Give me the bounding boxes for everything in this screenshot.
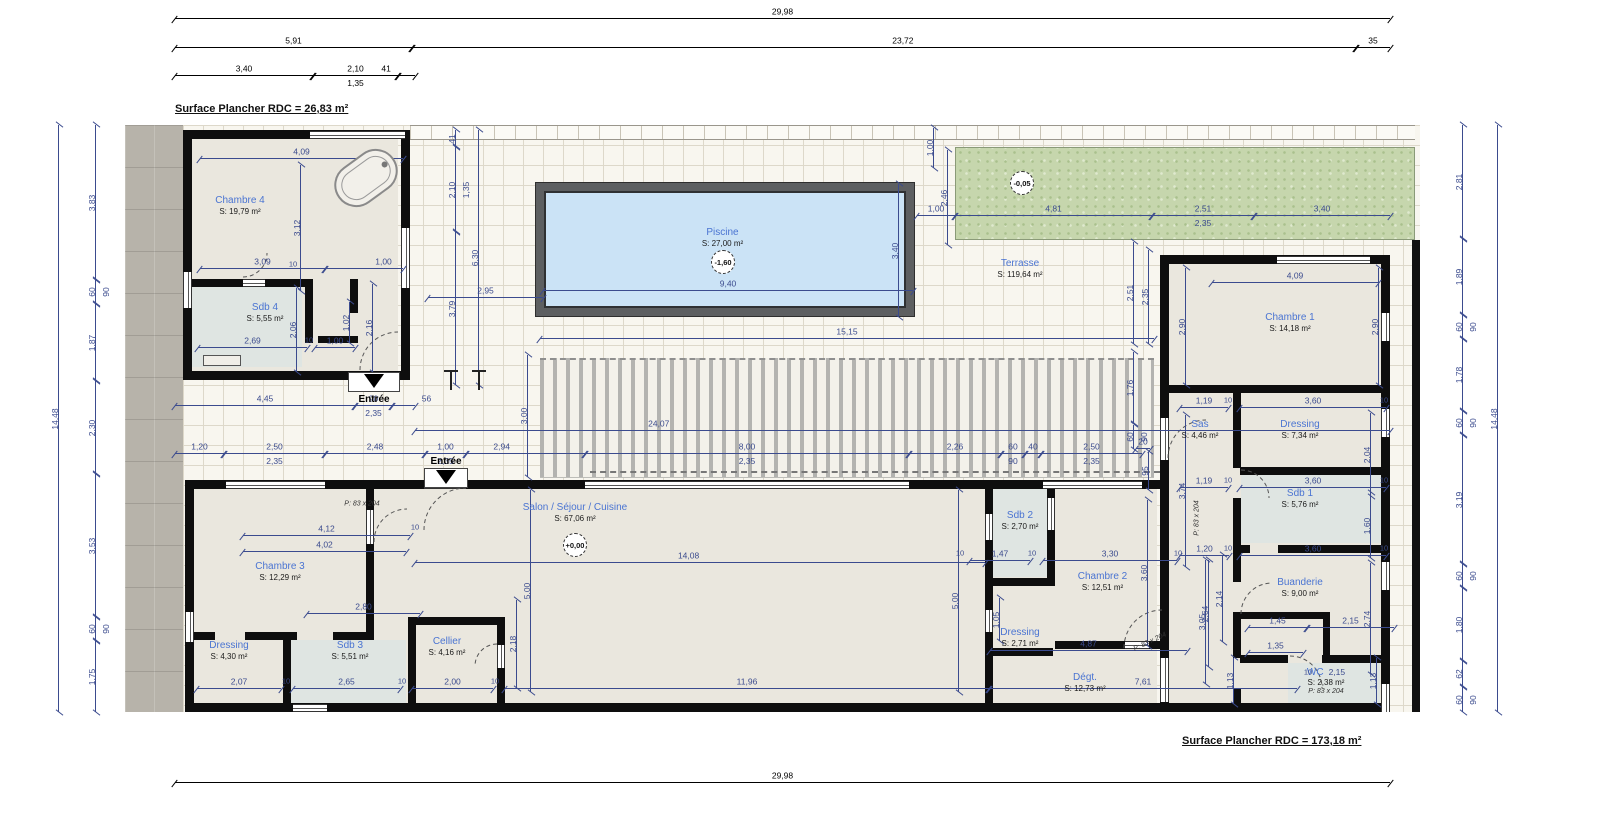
- dimension-1,20: 1,20: [175, 453, 224, 454]
- dim-label: 1,35: [1267, 642, 1284, 651]
- dimension-3,09: 3,09: [200, 268, 325, 269]
- dim-sublabel: 90: [1469, 322, 1478, 331]
- dim-label: 1,00: [437, 443, 454, 452]
- room-sdb3: Sdb 3S: 5,51 m²: [295, 636, 405, 666]
- dimension-1,80: 1,80: [1462, 588, 1463, 661]
- room-area: S: 4,16 m²: [429, 648, 466, 658]
- dim-label: 4,45: [257, 395, 274, 404]
- dimension-95: 95: [1148, 452, 1149, 490]
- room-name-row: Chambre 2: [1078, 571, 1127, 583]
- dimension-2,16: 2,16: [372, 284, 373, 372]
- dim-sublabel: 90: [102, 624, 111, 633]
- dim-label: 2,90: [1178, 318, 1187, 335]
- dimension-2,26: 2,26: [909, 453, 1001, 454]
- room-name-row: Dressing: [1280, 419, 1319, 431]
- dim-label: 2,14: [1215, 590, 1224, 607]
- dimension-2,74: 2,74: [1370, 563, 1371, 674]
- room-name-row: Terrasse: [1001, 258, 1039, 270]
- surface-label-bottom: Surface Plancher RDC = 173,18 m²: [1182, 735, 1361, 747]
- dim-label: 2,04: [1363, 446, 1372, 463]
- room-name-row: Buanderie: [1277, 577, 1323, 589]
- dimension-1,47: 1,47: [970, 560, 1030, 561]
- dim-label: 9,40: [720, 280, 737, 289]
- dim-label: 14,08: [678, 552, 699, 561]
- room-chambre2: Chambre 2S: 12,51 m²: [1050, 566, 1155, 598]
- dimension-3,60: 3,60: [1240, 407, 1386, 408]
- dimension-15,15: 15,15: [540, 338, 1154, 339]
- room-name-row: Piscine: [706, 227, 738, 239]
- dim-label-small: 10: [305, 336, 313, 345]
- dimension-2,46: 2,46: [947, 150, 948, 245]
- dimension-1,19: 1,19: [1180, 407, 1228, 408]
- dim-label: 4,09: [293, 148, 310, 157]
- level-marker: +0,00: [563, 533, 587, 557]
- room-area: S: 2,70 m²: [1002, 522, 1039, 532]
- dim-label: 41: [381, 65, 390, 74]
- dim-label-small: 10: [1380, 544, 1388, 553]
- dim-label: 1,60: [1363, 517, 1372, 534]
- dim-label: 4,12: [318, 525, 335, 534]
- room-name-row: Chambre 3: [255, 561, 304, 573]
- dimension-4,09: 4,09: [1212, 282, 1378, 283]
- dimension-7,61: 7,61: [989, 688, 1297, 689]
- dimension-2,14: 2,14: [1222, 555, 1223, 642]
- dimension-4,12: 4,12: [243, 535, 410, 536]
- room-area: S: 9,00 m²: [1282, 589, 1319, 599]
- dimension-60: 6090: [1462, 315, 1463, 339]
- dim-label: 60: [1455, 571, 1464, 580]
- room-area: S: 5,55 m²: [247, 314, 284, 324]
- dim-label: 62: [1455, 669, 1464, 678]
- room-name: Sdb 1: [1287, 488, 1313, 500]
- pergola-post-icon: [450, 370, 452, 390]
- dim-label-small: 10: [491, 677, 499, 686]
- dim-label: 1,19: [1196, 397, 1213, 406]
- room-wc: WC2,15S: 2,38 m²P: 83 x 204: [1272, 661, 1380, 701]
- dim-sublabel: 2,35: [1195, 219, 1212, 228]
- room-area: S: 12,73 m²: [1064, 684, 1105, 694]
- dim-label: 3,19: [1455, 491, 1464, 508]
- dim-label: 60: [1455, 695, 1464, 704]
- surface-label-top: Surface Plancher RDC = 26,83 m²: [175, 103, 348, 115]
- dimension-2,90: 2,90: [1185, 268, 1186, 385]
- dim-sublabel: 1,35: [462, 181, 471, 198]
- dim-label: 1,80: [1455, 616, 1464, 633]
- dim-label: 23,72: [892, 37, 913, 46]
- dimension-3,00: 3,00: [527, 355, 528, 477]
- dimension-20: 20: [1136, 448, 1150, 449]
- entrance-label: Entrée: [358, 394, 389, 405]
- dimension-1,00: 1,00: [917, 215, 955, 216]
- dim-sublabel: 2,35: [266, 457, 283, 466]
- room-degt: Dégt.S: 12,73 m²: [1040, 668, 1130, 698]
- dim-label: 11,96: [737, 678, 758, 687]
- dim-label: 1,20: [191, 443, 208, 452]
- dimension-1,00: 1,00: [315, 347, 355, 348]
- dim-label: 3,53: [88, 537, 97, 554]
- dimension-41: 41: [398, 75, 415, 76]
- dim-label: 1,00: [926, 140, 935, 157]
- dim-label-small: 10: [1224, 476, 1232, 485]
- dim-label: 4,02: [316, 541, 333, 550]
- dimension-1,87: 1,87: [95, 304, 96, 381]
- room-area: S: 14,18 m²: [1269, 324, 1310, 334]
- dimension-3,79: 3,79: [455, 232, 456, 385]
- dimension-3,12: 3,12: [300, 165, 301, 291]
- room-salon: Salon / Séjour / CuisineS: 67,06 m²: [495, 498, 655, 528]
- dimension-56: 56: [392, 405, 415, 406]
- room-name: Salon / Séjour / Cuisine: [523, 502, 628, 514]
- dim-label: 35: [1368, 37, 1377, 46]
- room-terrasse: TerrasseS: 119,64 m²: [960, 254, 1080, 284]
- dim-label: 15,15: [836, 328, 857, 337]
- room-name: Buanderie: [1277, 577, 1323, 589]
- dim-label: 2,65: [338, 678, 355, 687]
- dimension-2,18: 2,18: [516, 600, 517, 688]
- dim-sublabel: 90: [1008, 457, 1017, 466]
- dimension-1,02: 1,02: [349, 302, 350, 343]
- dim-label: 60: [1008, 443, 1017, 452]
- room-name: Dégt.: [1073, 672, 1097, 684]
- dim-label: 5,00: [951, 593, 960, 610]
- dim-label: 7,61: [1135, 678, 1152, 687]
- dimension-1,75: 1,75: [95, 641, 96, 712]
- level-marker: -1,60: [711, 250, 735, 274]
- dim-label: 3,12: [293, 220, 302, 237]
- dimension-2,10: 2,101,35: [455, 147, 456, 232]
- dim-label: 5,91: [285, 37, 302, 46]
- room-name-row: WC2,15: [1307, 667, 1345, 679]
- dimension-2,50: 2,502,35: [1041, 453, 1142, 454]
- dim-label-small: 10: [1028, 549, 1036, 558]
- dimension-2,80: 2,80: [307, 613, 420, 614]
- room-name: Dressing: [1280, 419, 1319, 431]
- dim-label: 1,78: [1455, 367, 1464, 384]
- dimension-3,19: 3,19: [1462, 435, 1463, 564]
- entrance-label: Entrée: [430, 456, 461, 467]
- dim-label: 3,40: [891, 242, 900, 259]
- dim-label-small: 10: [1380, 476, 1388, 485]
- dim-label-small: 10: [289, 260, 297, 269]
- dim-label: 1,20: [1196, 545, 1213, 554]
- dimension-8,00: 8,002,35: [585, 453, 909, 454]
- dim-label: 2,30: [88, 419, 97, 436]
- dimension-1,00: 1,00: [325, 268, 403, 269]
- dim-sublabel: 2,35: [365, 409, 382, 418]
- level-marker: -0,05: [1010, 171, 1034, 195]
- room-name-row: Chambre 1: [1265, 312, 1314, 324]
- dimension-3,60: 3,60: [1240, 555, 1386, 556]
- room-sas: SasS: 4,46 m²: [1168, 414, 1232, 446]
- room-sdb1: Sdb 1S: 5,76 m²: [1240, 484, 1360, 514]
- dim-label-small: 10: [1224, 396, 1232, 405]
- dim-label: 2,18: [509, 636, 518, 653]
- dim-label: 6,30: [471, 249, 480, 266]
- dimension-3,83: 3,83: [95, 125, 96, 280]
- door-arcs: [0, 0, 1600, 835]
- dimension-14,48: 14,48: [58, 125, 59, 712]
- dim-label-small: 10: [1380, 396, 1388, 405]
- dimension-60: 6090: [1001, 453, 1025, 454]
- dim-label: 56: [422, 395, 431, 404]
- room-area: S: 5,51 m²: [332, 652, 369, 662]
- dim-label: 8,00: [739, 443, 756, 452]
- room-area: S: 7,34 m²: [1282, 431, 1319, 441]
- dimension-3,05: 3,05: [1205, 560, 1206, 684]
- dimension-2,95: 2,95: [428, 297, 543, 298]
- room-area: S: 2,71 m²: [1002, 639, 1039, 649]
- dim-label: 2,94: [493, 443, 510, 452]
- dim-label: 2,16: [365, 320, 374, 337]
- dim-label: 95: [1141, 466, 1150, 475]
- dim-label: 20: [1138, 438, 1147, 447]
- room-cellier: CellierS: 4,16 m²: [404, 632, 490, 662]
- room-chambre1: Chambre 1S: 14,18 m²: [1230, 306, 1350, 340]
- dim-label: 2,10: [347, 65, 364, 74]
- dimension-3,40: 3,40: [898, 184, 899, 317]
- room-name-row: Chambre 4: [215, 195, 264, 207]
- dim-label-small: 10: [956, 549, 964, 558]
- room-name-row: Dressing: [209, 640, 248, 652]
- dimension-2,51: 2,51: [1133, 242, 1134, 344]
- dim-label-small: 10: [1174, 549, 1182, 558]
- room-name-row: Salon / Séjour / Cuisine: [523, 502, 628, 514]
- dim-label: 3,83: [88, 194, 97, 211]
- entrance-arrow-icon: [436, 470, 456, 484]
- dimension-2,69: 2,69: [198, 347, 307, 348]
- dimension-2,50: 2,502,35: [224, 453, 325, 454]
- dim-label: 2,46: [940, 189, 949, 206]
- dim-label: 2,15: [1342, 617, 1359, 626]
- dimension-60: 6090: [1462, 687, 1463, 712]
- dim-label: 2,69: [244, 337, 261, 346]
- dimension-2,81: 2,81: [1462, 125, 1463, 239]
- dim-label: 24,07: [648, 420, 669, 429]
- dimension-3,53: 3,53: [95, 474, 96, 617]
- dimension-40: 40: [1025, 453, 1041, 454]
- room-area: S: 12,51 m²: [1082, 583, 1123, 593]
- dim-sublabel: 90: [102, 287, 111, 296]
- dimension-23,72: 23,72: [412, 47, 1356, 48]
- room-inline-dim: 2,15: [1329, 667, 1346, 677]
- dimension-2,48: 2,48: [325, 453, 425, 454]
- dim-label: 2,50: [266, 443, 283, 452]
- dim-label: 1,00: [375, 258, 392, 267]
- dim-label: 2,95: [477, 287, 494, 296]
- room-area: S: 119,64 m²: [997, 270, 1042, 280]
- dimension-3,30: 3,30: [1043, 560, 1177, 561]
- room-sdb4: Sdb 4S: 5,55 m²: [205, 298, 325, 328]
- dim-label: 2,26: [947, 443, 964, 452]
- dim-label: 1,89: [1455, 269, 1464, 286]
- dim-label: 3,05: [1198, 614, 1207, 631]
- dimension-14,08: 14,08: [415, 562, 985, 563]
- dimension-1,00: 1,002,35: [425, 453, 466, 454]
- dim-label: 3,79: [448, 300, 457, 317]
- room-area: S: 67,06 m²: [554, 514, 595, 524]
- door-tag: P: 83 x 204: [1194, 500, 1201, 535]
- dimension-2,04: 2,04: [1370, 413, 1371, 496]
- door-swing-arc: [424, 488, 466, 530]
- dim-sublabel: 90: [1469, 695, 1478, 704]
- dim-label: 4,81: [1045, 205, 1062, 214]
- room-name: Terrasse: [1001, 258, 1039, 270]
- dimension-4,81: 4,81: [955, 215, 1152, 216]
- dimension-14,48: 14,48: [1497, 125, 1498, 712]
- dimension-60: 6090: [1133, 425, 1134, 449]
- room-name: Cellier: [433, 636, 461, 648]
- dim-label-small: 10: [411, 523, 419, 532]
- room-name-row: Dégt.: [1073, 672, 1097, 684]
- dim-sublabel: 90: [1469, 418, 1478, 427]
- dim-label: 1,45: [1269, 617, 1286, 626]
- dim-label-small: 10: [282, 677, 290, 686]
- dim-sublabel: 1,35: [347, 79, 364, 88]
- room-dressing2: DressingS: 2,71 m²: [985, 622, 1055, 654]
- room-name-row: Sdb 2: [1007, 510, 1033, 522]
- pergola-post-icon: [478, 370, 480, 390]
- dimension-35: 35: [1356, 47, 1390, 48]
- dimension-60: 6090: [95, 280, 96, 304]
- room-area: S: 4,30 m²: [211, 652, 248, 662]
- room-area: S: 27,00 m²: [702, 239, 743, 249]
- dim-label: 1,87: [88, 334, 97, 351]
- dimension-2,15: 2,15: [1307, 627, 1394, 628]
- dimension-2,65: 2,65: [293, 688, 400, 689]
- dimension-1,60: 1,60: [1370, 493, 1371, 558]
- radiator-icon: [203, 355, 241, 366]
- dim-label: 1,76: [1126, 379, 1135, 396]
- dim-label: 2,90: [1371, 318, 1380, 335]
- dimension-60: 6090: [95, 617, 96, 641]
- dim-label: 2,81: [1455, 174, 1464, 191]
- room-name: Dressing: [209, 640, 248, 652]
- dimension-2,64: 2,64: [1208, 560, 1209, 667]
- dim-label: 1,75: [88, 668, 97, 685]
- floor-plan: 29,985,9123,72353,402,101,354129,9814,48…: [0, 0, 1600, 835]
- dimension-2,35: 2,35: [1148, 250, 1149, 344]
- dimension-1,78: 1,78: [1462, 339, 1463, 411]
- room-name: Sdb 3: [337, 640, 363, 652]
- room-buanderie: BuanderieS: 9,00 m²: [1240, 572, 1360, 604]
- door-tag: P: 83 x 204: [344, 501, 379, 508]
- dim-label: 3,40: [236, 65, 253, 74]
- room-name-row: Sas: [1191, 419, 1208, 431]
- dim-label: 4,09: [1287, 272, 1304, 281]
- dimension-2,10: 2,101,35: [313, 75, 398, 76]
- room-name: Sdb 4: [252, 302, 278, 314]
- door-swing-arc: [374, 509, 407, 542]
- dim-label: 3,60: [1305, 545, 1322, 554]
- dimension-6,30: 6,30: [478, 130, 479, 385]
- dimension-62: 62: [1462, 661, 1463, 687]
- dim-label: 14,48: [1490, 408, 1499, 429]
- dimension-2,51: 2,512,35: [1152, 215, 1254, 216]
- dimension-1,35: 1,35: [1248, 652, 1303, 653]
- dim-label: 3,30: [1102, 550, 1119, 559]
- room-chambre3: Chambre 3S: 12,29 m²: [230, 556, 330, 588]
- dim-label: 29,98: [772, 772, 793, 781]
- dimension-1,00: 1,00: [933, 128, 934, 168]
- room-name: Chambre 2: [1078, 571, 1127, 583]
- room-chambre4: Chambre 4S: 19,79 m²: [180, 190, 300, 222]
- dim-label: 2,80: [355, 603, 372, 612]
- dimension-60: 6090: [1462, 411, 1463, 435]
- dimension-9,40: 9,40: [543, 290, 913, 291]
- dimension-11,96: 11,96: [505, 688, 989, 689]
- dim-label: 3,09: [254, 258, 271, 267]
- room-name: Sdb 2: [1007, 510, 1033, 522]
- room-name-row: Cellier: [433, 636, 461, 648]
- dim-label: 1,02: [342, 314, 351, 331]
- room-area: S: 5,76 m²: [1282, 500, 1319, 510]
- dimension-2,90: 2,90: [1378, 268, 1379, 385]
- dim-label: 60: [88, 624, 97, 633]
- dimension-1,45: 1,45: [1248, 627, 1307, 628]
- door-swing-arc: [360, 332, 398, 370]
- dim-label-small: 10: [1304, 668, 1312, 677]
- room-name: Chambre 1: [1265, 312, 1314, 324]
- dim-label: 60: [1455, 322, 1464, 331]
- dim-label: 2,50: [1083, 443, 1100, 452]
- dim-label: 2,35: [1141, 289, 1150, 306]
- dim-label: 1,13: [1226, 673, 1235, 690]
- dim-label: 5,00: [523, 583, 532, 600]
- dimension-5,00: 5,00: [958, 490, 959, 692]
- room-name: Piscine: [706, 227, 738, 239]
- dim-label: 60: [1126, 432, 1135, 441]
- dimension-1,19: 1,19: [1180, 487, 1228, 488]
- dim-label: 1,47: [992, 550, 1009, 559]
- room-sdb2: Sdb 2S: 2,70 m²: [993, 505, 1047, 537]
- dim-sublabel: 2,35: [739, 457, 756, 466]
- dim-sublabel: 90: [1469, 571, 1478, 580]
- dim-label: 4,87: [1080, 640, 1097, 649]
- dim-label: 2,51: [1126, 285, 1135, 302]
- room-name-row: Dressing: [1000, 627, 1039, 639]
- dimension-1,13: 1,13: [1233, 658, 1234, 704]
- dim-label-small: 10: [398, 677, 406, 686]
- room-dressing3: DressingS: 4,30 m²: [185, 636, 273, 666]
- dim-label: 40: [1028, 443, 1037, 452]
- dim-label: 3,60: [1305, 397, 1322, 406]
- dimension-1,76: 1,76: [1133, 352, 1134, 423]
- dim-label: 3,00: [520, 408, 529, 425]
- dimension-2,07: 2,07: [197, 688, 281, 689]
- dim-label: 2,74: [1363, 610, 1372, 627]
- room-name: Chambre 3: [255, 561, 304, 573]
- dimension-3,40: 3,40: [175, 75, 313, 76]
- dim-label: 1,19: [1196, 477, 1213, 486]
- dim-label: 14,48: [51, 408, 60, 429]
- dimension-2,00: 2,00: [412, 688, 493, 689]
- room-dressing1: DressingS: 7,34 m²: [1240, 414, 1360, 446]
- dim-label: 29,98: [772, 8, 793, 17]
- room-name: Chambre 4: [215, 195, 264, 207]
- room-area: S: 12,29 m²: [259, 573, 300, 583]
- dimension-4,02: 4,02: [243, 551, 406, 552]
- room-area: S: 2,38 m²: [1308, 678, 1345, 688]
- dimension-29,98: 29,98: [175, 18, 1390, 19]
- dim-label: 60: [88, 287, 97, 296]
- dim-label: 2,51: [1195, 205, 1212, 214]
- dim-label: 1,00: [327, 337, 344, 346]
- dim-label: 60: [1455, 418, 1464, 427]
- room-name-row: Sdb 3: [337, 640, 363, 652]
- room-name-row: Sdb 4: [252, 302, 278, 314]
- room-name: Dressing: [1000, 627, 1039, 639]
- dimension-2,94: 2,94: [466, 453, 585, 454]
